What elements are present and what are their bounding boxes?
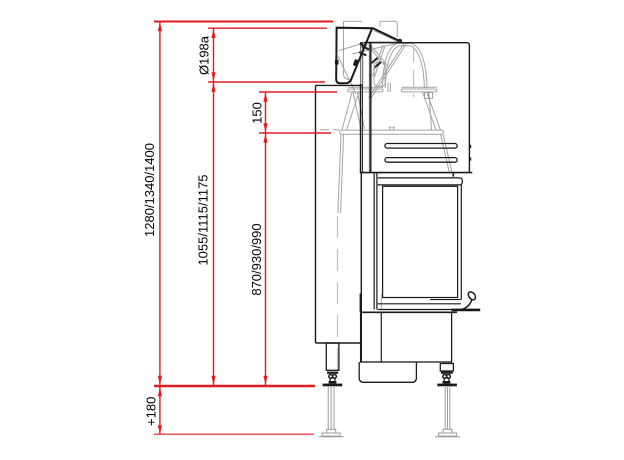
svg-text:1280/1340/1400: 1280/1340/1400 xyxy=(142,143,157,237)
svg-text:870/930/990: 870/930/990 xyxy=(249,223,264,295)
svg-text:Ø198a: Ø198a xyxy=(196,35,211,75)
svg-text:1055/1115/1175: 1055/1115/1175 xyxy=(196,174,211,265)
svg-text:150: 150 xyxy=(250,102,265,124)
svg-text:+180: +180 xyxy=(144,397,159,426)
